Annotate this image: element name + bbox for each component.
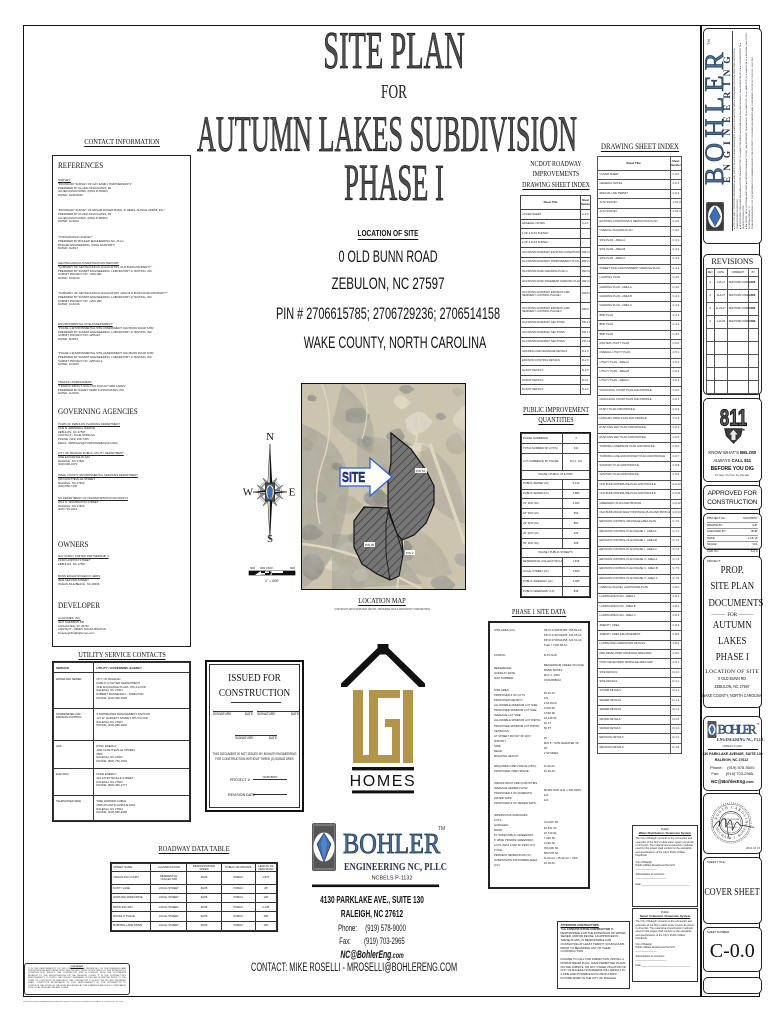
svg-text:HOMES: HOMES xyxy=(350,773,417,790)
svg-text:PIN 36: PIN 36 xyxy=(365,543,375,547)
svg-text:N: N xyxy=(266,431,274,443)
svg-text:NCBELS P-1132: NCBELS P-1132 xyxy=(372,876,413,882)
svg-text:600: 600 xyxy=(250,566,255,570)
svg-text:ENGINEERING NC, PLLC: ENGINEERING NC, PLLC xyxy=(344,861,447,873)
svg-text:811: 811 xyxy=(720,406,747,431)
svg-text:600: 600 xyxy=(290,566,295,570)
svg-text:2016.01.15: 2016.01.15 xyxy=(746,846,760,850)
svg-text:W: W xyxy=(243,487,254,499)
svg-text:BOHLER: BOHLER xyxy=(343,827,441,859)
svg-text:BOHLER: BOHLER xyxy=(718,722,757,737)
svg-text:E: E xyxy=(289,487,296,499)
svg-text:1" = 600': 1" = 600' xyxy=(265,579,279,583)
svg-text:0: 0 xyxy=(271,566,273,570)
svg-text:PIN 2: PIN 2 xyxy=(406,551,414,555)
svg-text:SITE: SITE xyxy=(342,469,365,485)
svg-text:TM: TM xyxy=(757,723,760,726)
svg-text:PIN 61: PIN 61 xyxy=(416,469,426,473)
svg-text:TM: TM xyxy=(438,826,445,832)
svg-text:300: 300 xyxy=(260,566,265,570)
